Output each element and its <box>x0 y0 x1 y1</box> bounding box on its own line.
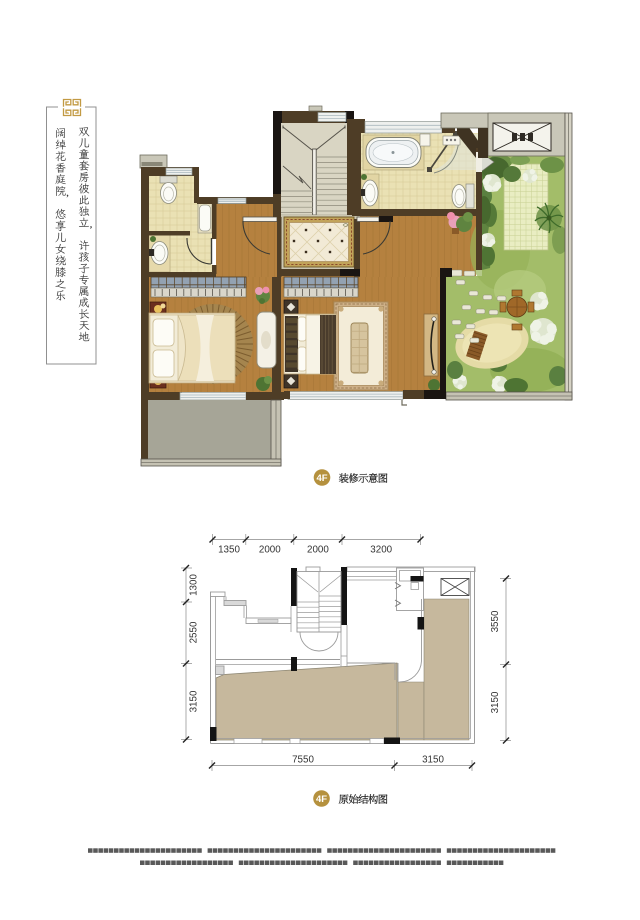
svg-text:2000: 2000 <box>307 545 329 556</box>
svg-text:2550: 2550 <box>189 621 200 643</box>
svg-text:2000: 2000 <box>259 545 281 556</box>
svg-text:3200: 3200 <box>370 545 392 556</box>
svg-text:1350: 1350 <box>218 545 240 556</box>
svg-text:3550: 3550 <box>490 610 501 632</box>
svg-text:3150: 3150 <box>189 690 200 712</box>
svg-text:3150: 3150 <box>490 691 501 713</box>
svg-text:4F: 4F <box>316 794 327 805</box>
svg-text:4F: 4F <box>316 473 327 484</box>
svg-text:1300: 1300 <box>189 574 200 596</box>
svg-text:3150: 3150 <box>422 755 444 766</box>
svg-text:7550: 7550 <box>292 755 314 766</box>
